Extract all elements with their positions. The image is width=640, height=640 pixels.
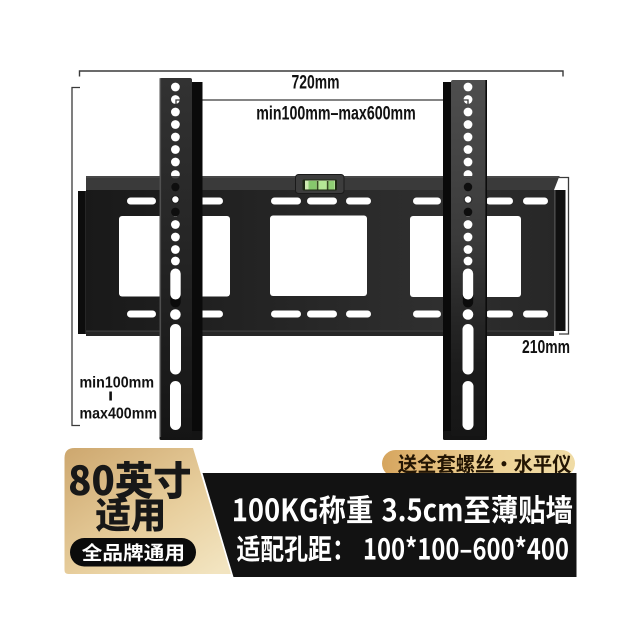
svg-text:210mm: 210mm xyxy=(522,337,570,357)
svg-text:min100mm: min100mm xyxy=(80,375,155,392)
svg-text:max400mm: max400mm xyxy=(80,405,158,422)
svg-text:720mm: 720mm xyxy=(292,73,340,94)
svg-text:min100mm–max600mm: min100mm–max600mm xyxy=(256,104,416,125)
